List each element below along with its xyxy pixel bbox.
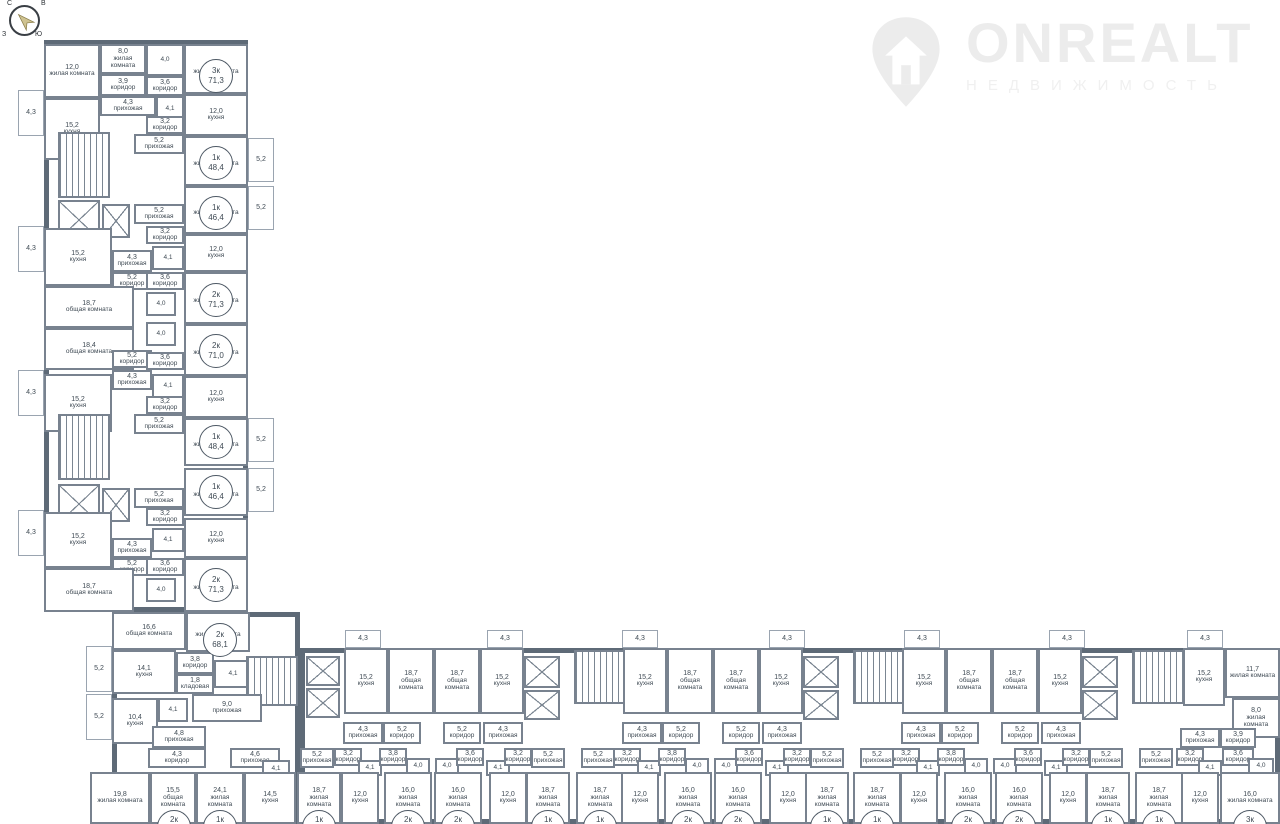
room-label: кухня	[500, 798, 517, 805]
room-area: 5,2	[94, 713, 104, 721]
room-label: коридор	[165, 758, 190, 765]
apartment-badge: 1к46,4	[199, 475, 233, 509]
brand-tagline: НЕДВИЖИМОСТЬ	[966, 77, 1254, 94]
elevator	[306, 656, 340, 686]
room-area: 4,1	[493, 764, 502, 771]
room-area: 4,0	[413, 762, 422, 769]
room: 5,2прихожая	[810, 748, 844, 768]
room-label: коридор	[390, 733, 415, 740]
room-area: 4,3	[917, 635, 927, 643]
room: 5,2прихожая	[134, 414, 184, 434]
elevator	[1082, 656, 1118, 688]
room: 18,7общая комната	[434, 648, 480, 714]
room-label: жилая комната	[300, 795, 338, 809]
room-label: прихожая	[768, 733, 797, 740]
room: 3,8коридор	[176, 652, 214, 674]
room-area: 4,1	[228, 670, 237, 677]
apartment-type: 2к	[212, 341, 220, 351]
compass-south-label: Ю	[35, 31, 42, 38]
room: 5,2прихожая	[134, 488, 184, 508]
balcony: 4,3	[18, 510, 44, 556]
apartment-type: 1к	[212, 432, 220, 442]
room: 15,2кухня	[1183, 648, 1225, 706]
room: 12,0кухня	[184, 376, 248, 418]
room: 5,2прихожая	[1089, 748, 1123, 768]
room-label: прихожая	[213, 708, 242, 715]
room: 18,7общая комната	[946, 648, 992, 714]
room-area: 4,1	[644, 764, 653, 771]
room: 4,3коридор	[148, 748, 206, 768]
bathroom: 4,1	[152, 246, 184, 270]
room-label: жилая комната	[856, 795, 898, 809]
room-label: коридор	[153, 86, 178, 93]
room: 5,2прихожая	[300, 748, 334, 768]
room: 5,2коридор	[722, 722, 760, 744]
room-label: кухня	[262, 798, 279, 805]
bathroom: 4,0	[146, 578, 176, 602]
room: 5,2прихожая	[581, 748, 615, 768]
balcony: 4,3	[487, 630, 523, 648]
room: 3,2коридор	[146, 226, 184, 244]
room: 4,3прихожая	[112, 250, 152, 272]
room-label: общая комната	[153, 795, 193, 809]
room: 4,3прихожая	[762, 722, 802, 744]
apartment-type: 1к	[212, 482, 220, 492]
room: 15,2кухня	[344, 648, 388, 714]
room-area: 4,1	[163, 382, 172, 389]
apartment-total-area: 71,0	[208, 351, 224, 361]
room-label: прихожая	[1047, 733, 1076, 740]
bathroom: 4,1	[152, 374, 184, 398]
room-area: 4,1	[165, 105, 174, 112]
room: 1,8кладовая	[176, 674, 214, 694]
room: 4,3прихожая	[622, 722, 662, 744]
balcony: 4,3	[1187, 630, 1223, 648]
room: 12,0кухня	[769, 772, 807, 824]
room-label: коридор	[458, 757, 483, 764]
room: 4,3прихожая	[112, 370, 152, 390]
apartment-type: 1к	[212, 153, 220, 163]
balcony: 4,3	[1049, 630, 1085, 648]
room-area: 4,3	[782, 635, 792, 643]
room-label: прихожая	[1092, 758, 1121, 765]
apartment-badge: 2к71,3	[199, 568, 233, 602]
room-label: коридор	[183, 663, 208, 670]
room-area: 4,3	[1200, 635, 1210, 643]
bathroom: 4,1	[158, 698, 188, 722]
room-label: общая комната	[716, 678, 756, 692]
stairs	[574, 650, 628, 704]
balcony: 4,3	[18, 226, 44, 272]
room-area: 4,0	[442, 762, 451, 769]
room-label: кухня	[773, 681, 790, 688]
balcony: 4,3	[345, 630, 381, 648]
room-label: общая комната	[66, 307, 112, 314]
bathroom: 4,0	[146, 44, 184, 76]
apartment-type: 2к	[404, 815, 412, 824]
room-area: 4,3	[26, 245, 36, 253]
apartment-type: 2к	[212, 290, 220, 300]
balcony: 5,2	[248, 468, 274, 512]
room-label: коридор	[381, 757, 406, 764]
room-label: кухня	[352, 798, 369, 805]
room: 5,2прихожая	[531, 748, 565, 768]
apartment-type: 3к	[1246, 815, 1254, 824]
watermark-logo: ONREALT НЕДВИЖИМОСТЬ	[866, 14, 1254, 115]
room: 18,7общая комната	[713, 648, 759, 714]
stairs	[58, 414, 110, 480]
room-label: прихожая	[534, 758, 563, 765]
room: 5,2коридор	[941, 722, 979, 744]
apartment-type: 1к	[1155, 815, 1163, 824]
room-area: 5,2	[256, 486, 266, 494]
room: 18,7общая комната	[44, 286, 134, 328]
room-area: 4,1	[1205, 764, 1214, 771]
room-label: коридор	[615, 757, 640, 764]
room-label: кухня	[916, 681, 933, 688]
room: 12,0кухня	[184, 94, 248, 136]
room-label: жилая комната	[1138, 795, 1180, 809]
apartment-total-area: 68,1	[212, 640, 228, 650]
room: 12,0кухня	[489, 772, 527, 824]
room: 4,3прихожая	[483, 722, 523, 744]
room-label: коридор	[111, 85, 136, 92]
stairs	[58, 132, 110, 198]
room: 4,3прихожая	[901, 722, 941, 744]
room: 5,2коридор	[1001, 722, 1039, 744]
room-label: кухня	[1196, 677, 1213, 684]
room-label: жилая комната	[1230, 673, 1275, 680]
room-label: кухня	[632, 798, 649, 805]
room-area: 4,3	[26, 389, 36, 397]
room: 15,2кухня	[44, 228, 112, 286]
room-label: жилая комната	[717, 795, 759, 809]
room: 15,2кухня	[759, 648, 803, 714]
room: 3,6коридор	[146, 76, 184, 96]
room-label: коридор	[1008, 733, 1033, 740]
room: 9,0прихожая	[192, 694, 262, 722]
room: 14,1кухня	[112, 650, 176, 694]
room-area: 4,0	[156, 586, 165, 593]
room: 19,8жилая комната	[90, 772, 150, 824]
balcony: 5,2	[248, 186, 274, 230]
room: 15,2кухня	[480, 648, 524, 714]
room: 3,6коридор	[146, 352, 184, 370]
room: 5,2прихожая	[1139, 748, 1173, 768]
room-area: 4,1	[772, 764, 781, 771]
room-label: жилая комната	[998, 795, 1040, 809]
bathroom: 4,0	[146, 292, 176, 316]
balcony: 5,2	[248, 418, 274, 462]
room-label: коридор	[153, 125, 178, 132]
room: 3,6коридор	[1014, 748, 1042, 766]
room: 3,2коридор	[146, 116, 184, 134]
bathroom: 4,0	[146, 322, 176, 346]
room: 3,8коридор	[658, 748, 686, 766]
room-label: коридор	[737, 757, 762, 764]
apartment-total-area: 71,3	[208, 585, 224, 595]
room: 12,0кухня	[621, 772, 659, 824]
room-area: 4,3	[1062, 635, 1072, 643]
room-label: прихожая	[303, 758, 332, 765]
room-label: прихожая	[165, 737, 194, 744]
room-area: 5,2	[256, 436, 266, 444]
room-label: общая комната	[437, 678, 477, 692]
room: 3,6коридор	[146, 272, 184, 290]
room-label: прихожая	[813, 758, 842, 765]
room: 4,3прихожая	[100, 96, 156, 116]
room-area: 4,1	[1051, 764, 1060, 771]
room-label: коридор	[939, 757, 964, 764]
room-label: кухня	[911, 798, 928, 805]
room: 3,2коридор	[146, 396, 184, 414]
room-label: коридор	[669, 733, 694, 740]
room-label: коридор	[894, 757, 919, 764]
room: 8,0жилая комната	[100, 44, 146, 74]
room-label: жилая комната	[49, 71, 94, 78]
room: 4,8прихожая	[152, 726, 206, 748]
room-label: кухня	[780, 798, 797, 805]
room-area: 4,0	[156, 300, 165, 307]
room-area: 5,2	[94, 665, 104, 673]
apartment-type: 2к	[1015, 815, 1023, 824]
apartment-total-area: 48,4	[208, 163, 224, 173]
apartment-total-area: 71,3	[208, 300, 224, 310]
room: 18,7общая комната	[992, 648, 1038, 714]
room-label: жилая комната	[1235, 715, 1277, 729]
room-label: прихожая	[118, 261, 147, 268]
room-label: общая комната	[949, 678, 989, 692]
room-label: кухня	[127, 721, 144, 728]
room: 12,0кухня	[1181, 772, 1219, 824]
apartment-type: 2к	[734, 815, 742, 824]
apartment-badge: 1к48,4	[199, 146, 233, 180]
apartment-type: 2к	[170, 815, 178, 824]
room-area: 4,0	[692, 762, 701, 769]
room-label: прихожая	[907, 733, 936, 740]
compass-north-label: С	[7, 0, 12, 7]
room-label: жилая комната	[947, 795, 989, 809]
room-label: общая комната	[66, 349, 112, 356]
elevator	[524, 656, 560, 688]
balcony: 4,3	[18, 370, 44, 416]
room-label: коридор	[336, 757, 361, 764]
house-pin-icon	[866, 14, 946, 115]
room-label: коридор	[153, 235, 178, 242]
elevator	[803, 656, 839, 688]
room: 5,2прихожая	[860, 748, 894, 768]
room: 15,2кухня	[44, 512, 112, 568]
room-label: коридор	[729, 733, 754, 740]
apartment-badge: 2к68,1	[203, 623, 237, 657]
room-label: жилая комната	[1227, 798, 1272, 805]
room-label: кухня	[1192, 798, 1209, 805]
room-label: жилая комната	[667, 795, 709, 809]
balcony: 4,3	[769, 630, 805, 648]
room-area: 4,0	[1000, 762, 1009, 769]
room-label: прихожая	[145, 214, 174, 221]
balcony: 4,3	[18, 90, 44, 136]
apartment-type: 2к	[964, 815, 972, 824]
room: 3,6коридор	[146, 558, 184, 576]
balcony: 5,2	[86, 694, 112, 740]
apartment-badge: 1к46,4	[199, 196, 233, 230]
balcony: 4,3	[904, 630, 940, 648]
room: 12,0кухня	[184, 234, 248, 272]
room-area: 4,1	[163, 254, 172, 261]
elevator	[524, 690, 560, 720]
room: 3,8коридор	[937, 748, 965, 766]
room-label: кухня	[637, 681, 654, 688]
room-area: 4,3	[358, 635, 368, 643]
room: 12,0кухня	[1049, 772, 1087, 824]
brand-name: ONREALT	[966, 14, 1254, 73]
apartment-type: 3к	[212, 66, 220, 76]
compass-west-label: З	[2, 31, 6, 38]
room: 3,9коридор	[100, 74, 146, 96]
apartment-badge: 3к71,3	[199, 59, 233, 93]
room-area: 4,3	[26, 529, 36, 537]
apartment-badge: 2к71,3	[199, 283, 233, 317]
balcony: 5,2	[86, 646, 112, 692]
room-label: коридор	[153, 517, 178, 524]
bathroom: 4,1	[152, 528, 184, 552]
watermark-text: ONREALT НЕДВИЖИМОСТЬ	[966, 14, 1254, 94]
room-area: 4,0	[160, 56, 169, 63]
room: 14,5кухня	[244, 772, 296, 824]
room-label: жилая комната	[437, 795, 479, 809]
room-area: 4,3	[500, 635, 510, 643]
room-label: кухня	[208, 253, 225, 260]
room-area: 4,3	[635, 635, 645, 643]
room-label: прихожая	[489, 733, 518, 740]
room-label: прихожая	[118, 548, 147, 555]
room-label: кухня	[70, 257, 87, 264]
room-area: 4,1	[163, 536, 172, 543]
room-label: кухня	[208, 397, 225, 404]
balcony: 5,2	[248, 138, 274, 182]
room: 3,6коридор	[456, 748, 484, 766]
room-label: жилая комната	[529, 795, 567, 809]
room-label: кухня	[494, 681, 511, 688]
apartment-type: 1к	[873, 815, 881, 824]
room-label: кухня	[208, 538, 225, 545]
room: 4,3прихожая	[1180, 728, 1220, 748]
stairs	[1132, 650, 1186, 704]
room-area: 4,0	[721, 762, 730, 769]
room-area: 5,2	[256, 204, 266, 212]
room-label: прихожая	[145, 144, 174, 151]
room-label: прихожая	[118, 380, 147, 387]
elevator	[803, 690, 839, 720]
room-area: 4,0	[971, 762, 980, 769]
stairs	[853, 650, 907, 704]
room: 3,8коридор	[379, 748, 407, 766]
room-label: прихожая	[145, 498, 174, 505]
room: 15,2кухня	[902, 648, 946, 714]
room-label: коридор	[1226, 757, 1251, 764]
north-arrow-icon	[9, 5, 40, 36]
room: 5,2коридор	[383, 722, 421, 744]
room: 5,2коридор	[443, 722, 481, 744]
room-label: коридор	[1064, 757, 1089, 764]
room-label: кладовая	[181, 684, 209, 691]
room-area: 5,2	[256, 156, 266, 164]
room-label: кухня	[358, 681, 375, 688]
room-label: кухня	[70, 403, 87, 410]
apartment-type: 1к	[1104, 815, 1112, 824]
room-label: кухня	[208, 115, 225, 122]
room-area: 4,1	[923, 764, 932, 771]
room-label: общая комната	[66, 590, 112, 597]
apartment-type: 1к	[596, 815, 604, 824]
room-label: коридор	[120, 359, 145, 366]
room-label: коридор	[153, 361, 178, 368]
compass-rose: С В З Ю	[2, 1, 50, 45]
room-label: коридор	[948, 733, 973, 740]
room-label: коридор	[660, 757, 685, 764]
balcony: 4,3	[622, 630, 658, 648]
room: 5,2прихожая	[134, 134, 184, 154]
room: 4,3прихожая	[1041, 722, 1081, 744]
room-label: жилая комната	[387, 795, 429, 809]
room: 12,0кухня	[341, 772, 379, 824]
room-label: коридор	[153, 405, 178, 412]
apartment-type: 2к	[454, 815, 462, 824]
room-label: прихожая	[628, 733, 657, 740]
room: 3,2коридор	[783, 748, 811, 766]
room: 11,7жилая комната	[1225, 648, 1280, 698]
room-label: жилая комната	[103, 56, 143, 70]
room: 16,6общая комната	[112, 612, 186, 650]
room-label: жилая комната	[97, 798, 142, 805]
room-area: 4,3	[26, 109, 36, 117]
room: 4,3прихожая	[343, 722, 383, 744]
room-label: жилая комната	[579, 795, 621, 809]
room-label: общая комната	[670, 678, 710, 692]
room-label: прихожая	[114, 106, 143, 113]
room-label: общая комната	[126, 631, 172, 638]
apartment-type: 2к	[212, 575, 220, 585]
room-label: прихожая	[1186, 738, 1215, 745]
room: 15,2кухня	[623, 648, 667, 714]
apartment-total-area: 71,3	[208, 76, 224, 86]
room-label: кухня	[1052, 681, 1069, 688]
room-label: жилая комната	[808, 795, 846, 809]
room: 5,2прихожая	[134, 204, 184, 224]
room: 5,2коридор	[662, 722, 700, 744]
room-label: жилая комната	[1089, 795, 1127, 809]
room: 3,2коридор	[1062, 748, 1090, 766]
room: 15,2кухня	[1038, 648, 1082, 714]
apartment-type: 1к	[544, 815, 552, 824]
apartment-total-area: 46,4	[208, 213, 224, 223]
apartment-badge: 2к71,0	[199, 334, 233, 368]
elevator	[1082, 690, 1118, 720]
room-label: прихожая	[863, 758, 892, 765]
room-label: общая комната	[391, 678, 431, 692]
room-label: коридор	[1226, 738, 1251, 745]
room: 18,7общая комната	[388, 648, 434, 714]
apartment-total-area: 46,4	[208, 492, 224, 502]
room-label: общая комната	[995, 678, 1035, 692]
apartment-type: 2к	[216, 630, 224, 640]
room: 18,7общая комната	[44, 568, 134, 612]
room: 12,0жилая комната	[44, 44, 100, 98]
room-label: жилая комната	[199, 795, 241, 809]
room: 12,0кухня	[900, 772, 938, 824]
apartment-badge: 1к48,4	[199, 425, 233, 459]
